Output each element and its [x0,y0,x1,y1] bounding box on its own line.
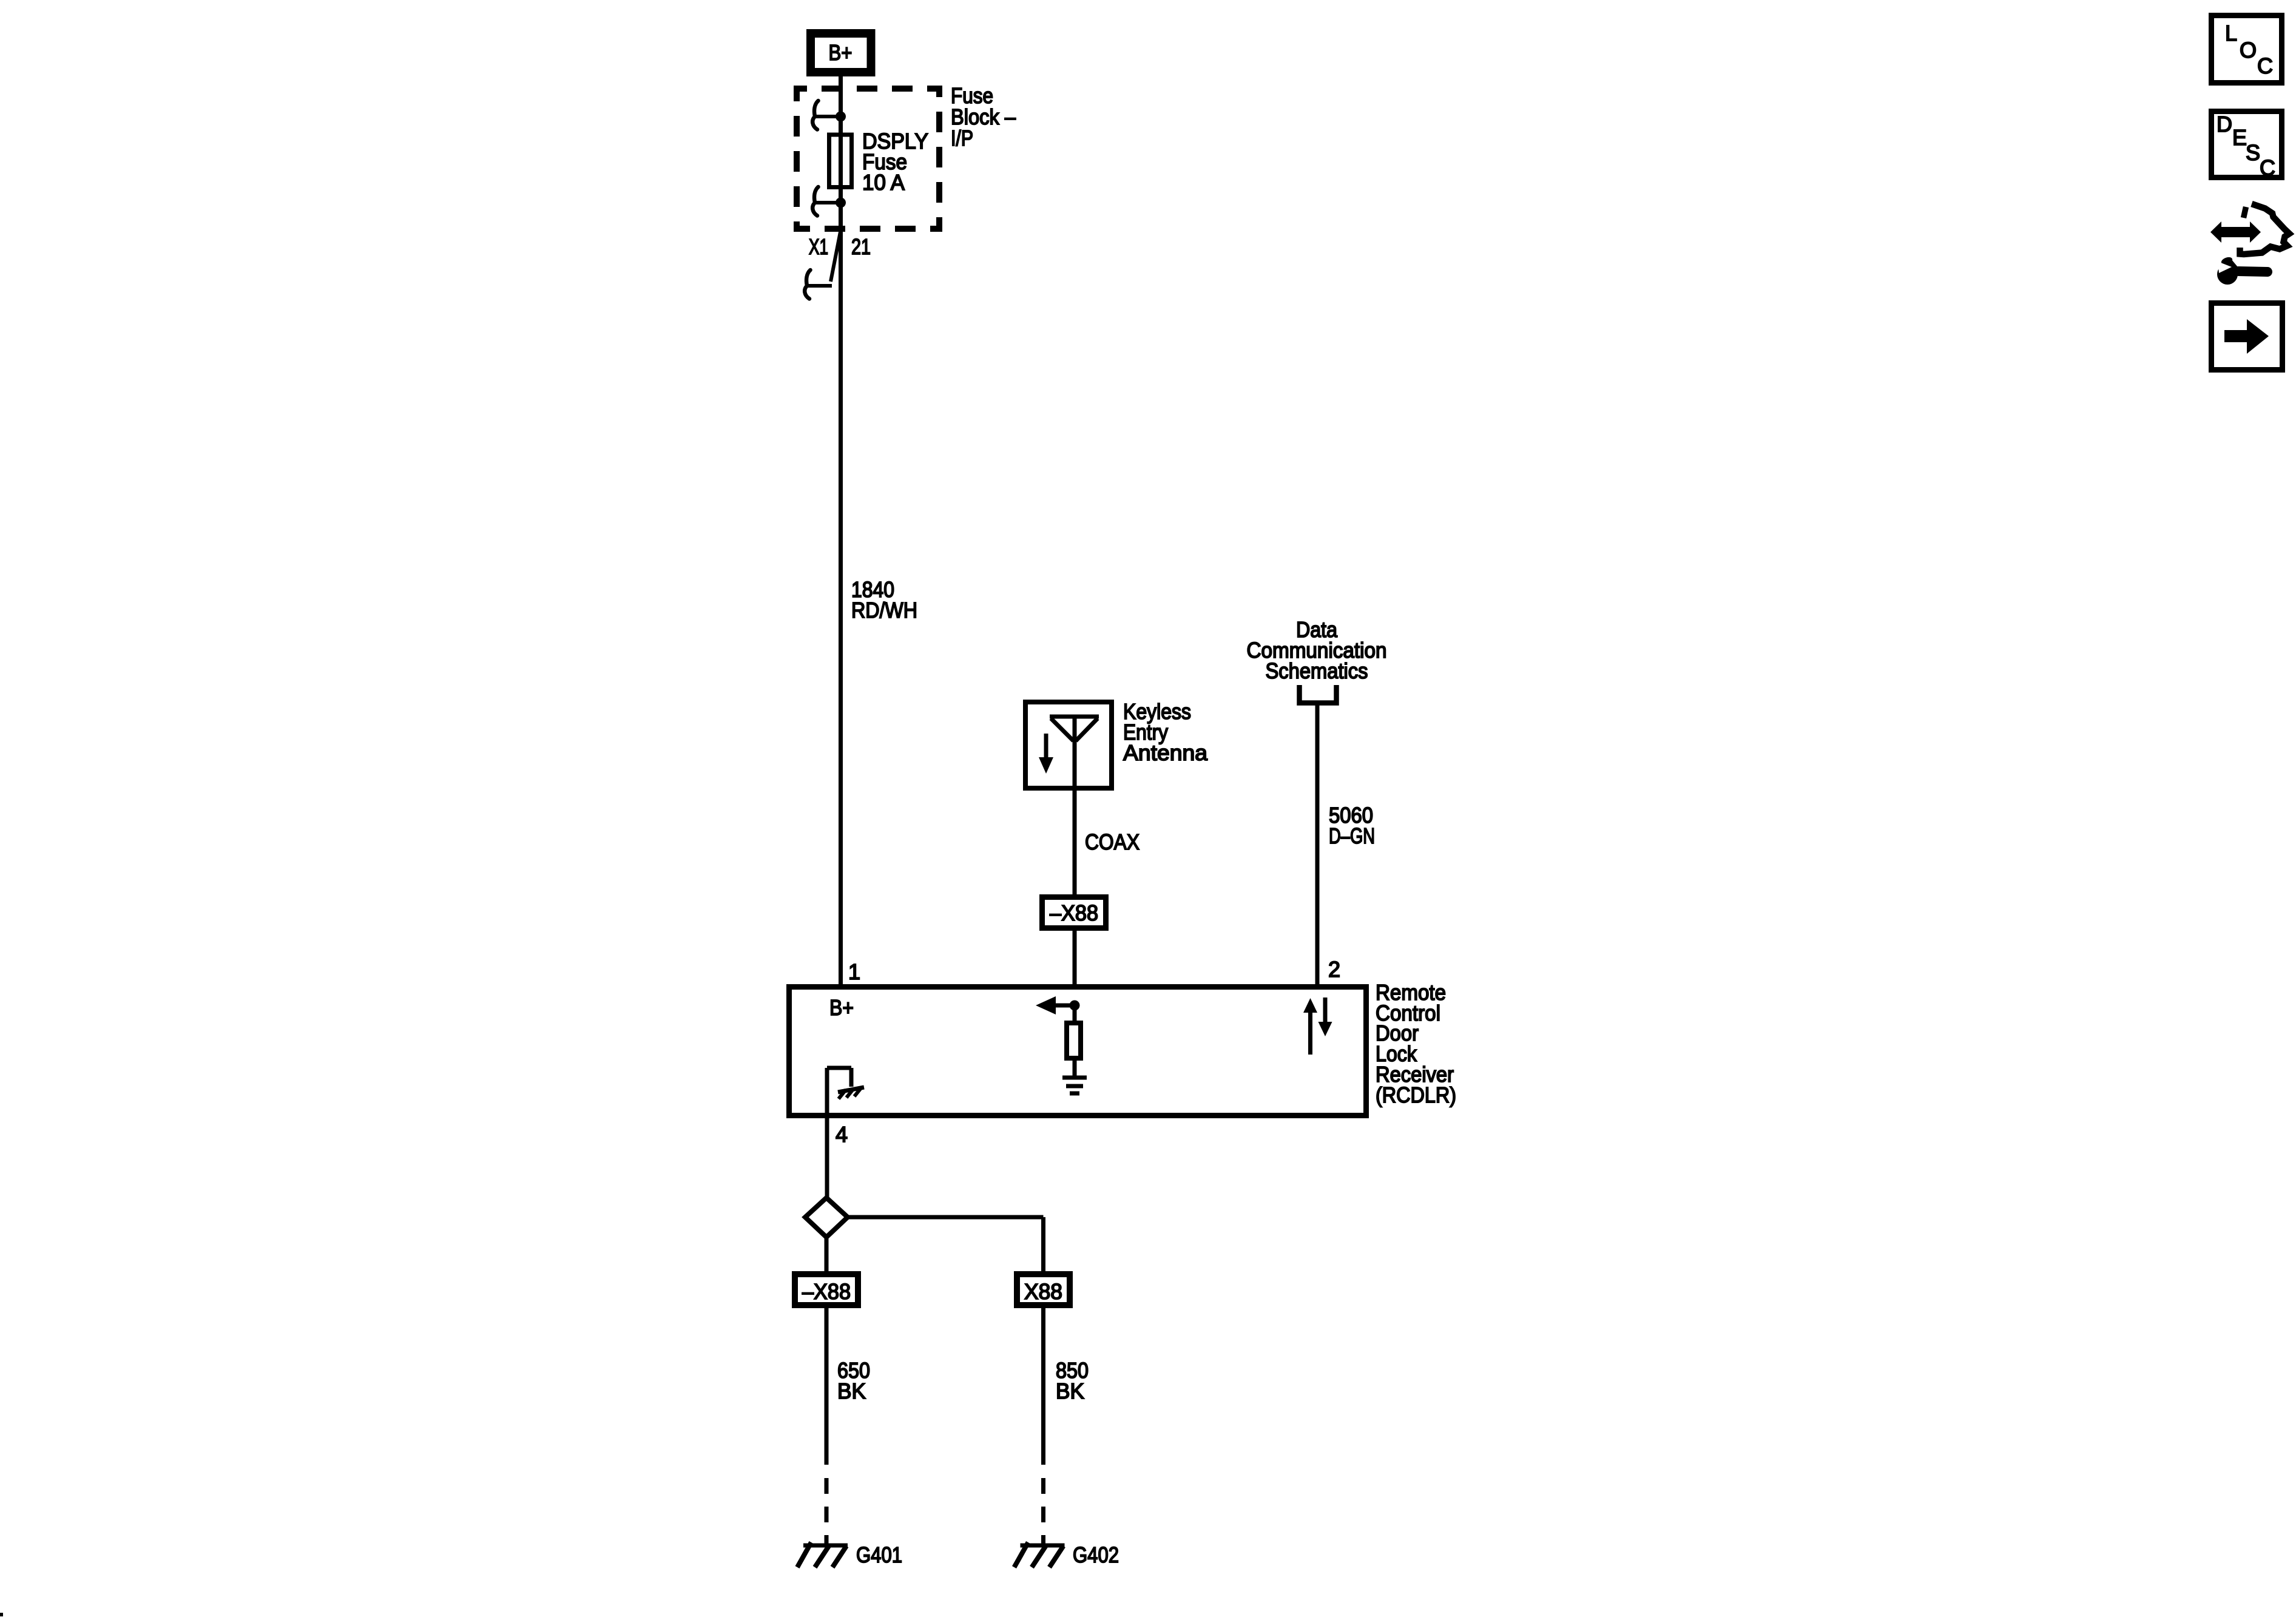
svg-text:(RCDLR): (RCDLR) [1376,1082,1456,1107]
svg-text:–X88: –X88 [802,1279,851,1304]
svg-text:C: C [2260,155,2275,180]
svg-text:D–GN: D–GN [1329,823,1375,848]
svg-text:B+: B+ [829,40,853,65]
svg-text:21: 21 [851,234,871,259]
svg-text:Schematics: Schematics [1266,658,1368,683]
svg-text:4: 4 [836,1122,848,1147]
svg-text:–X88: –X88 [1050,900,1098,925]
svg-text:S: S [2246,140,2260,165]
svg-text:Antenna: Antenna [1123,740,1208,765]
svg-text:2: 2 [1328,957,1340,982]
svg-text:BK: BK [837,1379,866,1403]
svg-text:D: D [2217,112,2232,137]
svg-text:BK: BK [1056,1379,1084,1403]
svg-text:B+: B+ [829,995,854,1020]
svg-text:RD/WH: RD/WH [851,598,917,623]
svg-text:G401: G401 [856,1542,902,1567]
svg-text:1: 1 [848,959,860,984]
svg-text:X1: X1 [809,234,828,259]
svg-text:X88: X88 [1024,1279,1062,1304]
svg-text:L: L [2225,21,2237,46]
svg-text:I/P: I/P [951,126,973,150]
svg-text:10 A: 10 A [862,170,905,195]
svg-text:COAX: COAX [1085,829,1140,854]
svg-text:O: O [2240,38,2257,62]
svg-text:C: C [2257,53,2273,78]
svg-text:G402: G402 [1073,1542,1119,1567]
svg-text:E: E [2232,125,2247,150]
